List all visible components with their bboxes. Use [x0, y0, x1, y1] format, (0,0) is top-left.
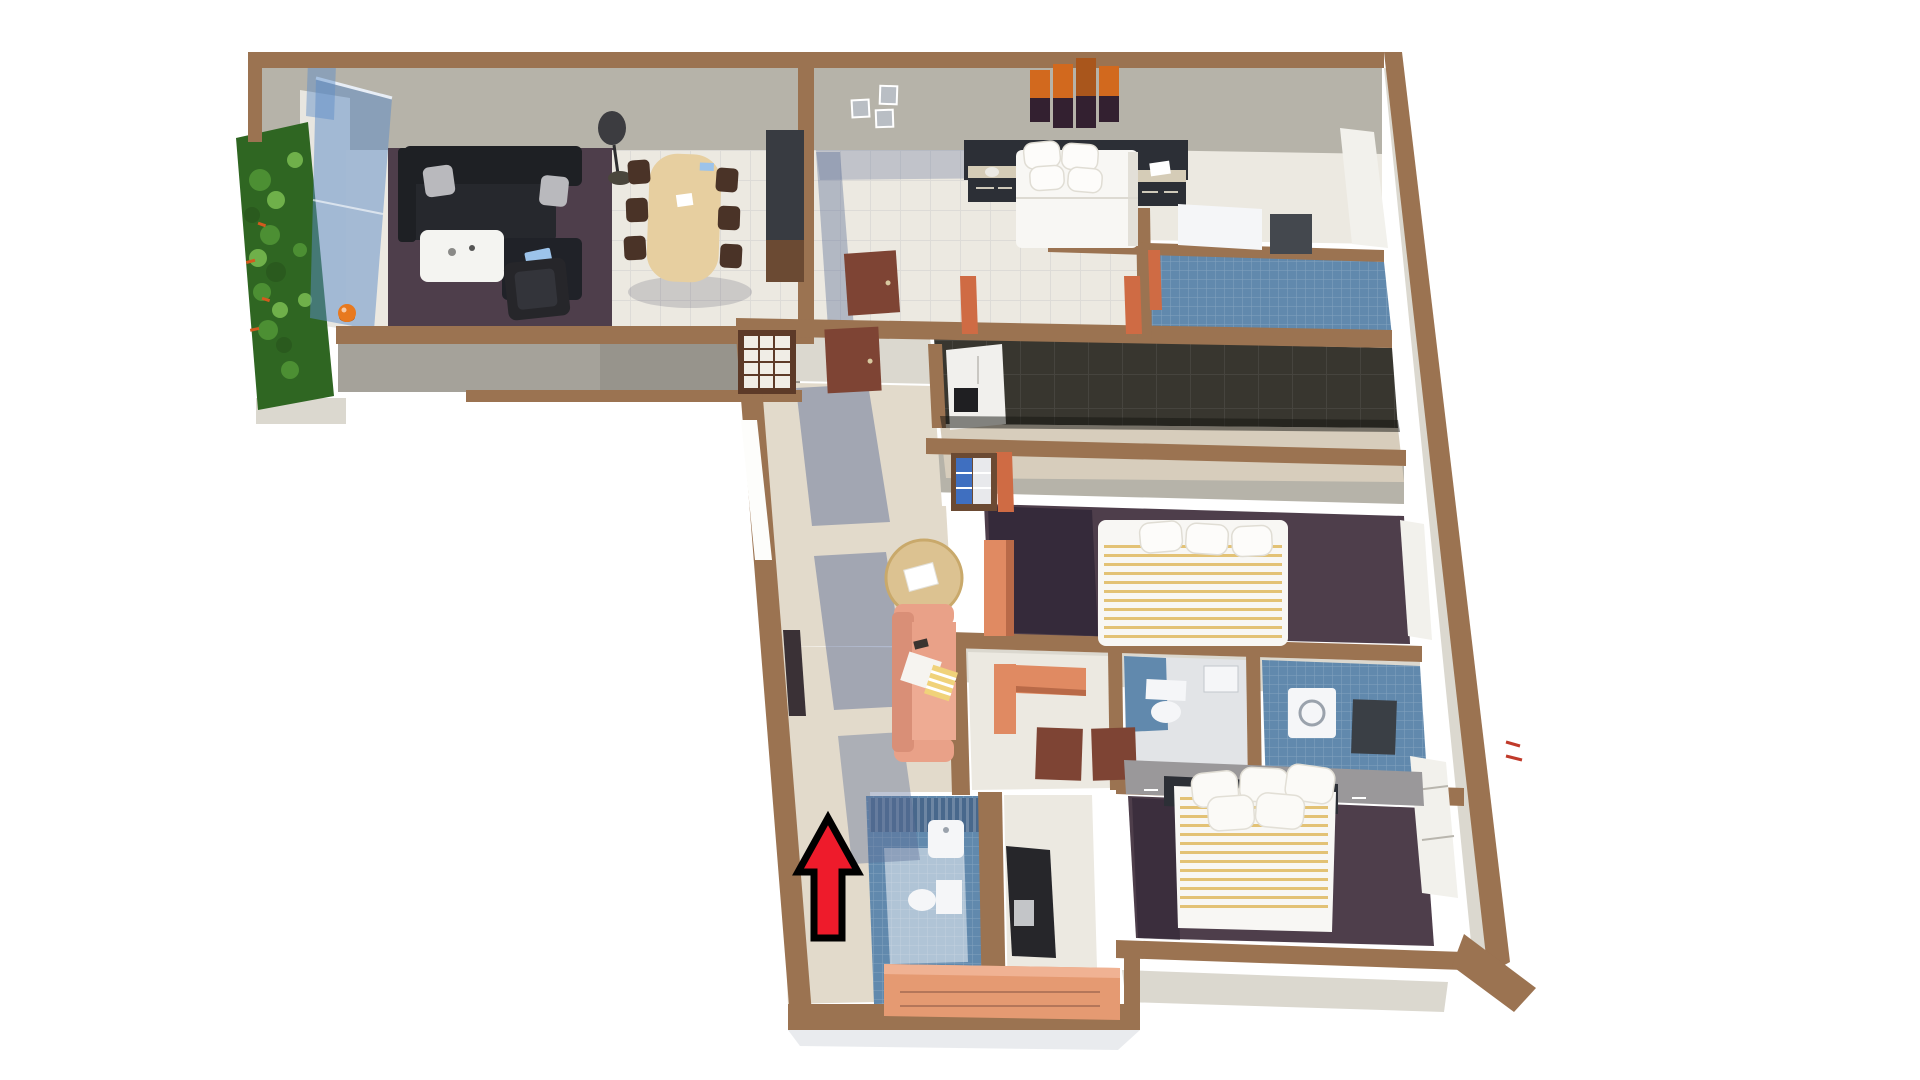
refrigerator-panel — [954, 388, 978, 412]
wall-entry-step — [1124, 950, 1140, 1030]
dark-cabinet — [1270, 214, 1312, 254]
white-coffee-table — [420, 230, 504, 282]
bookshelf — [951, 453, 997, 511]
sofa-cushion-right — [539, 175, 570, 208]
black-l-sofa-armrest — [398, 148, 416, 242]
sideboard-cabinet — [766, 130, 804, 242]
wall-living-bottom — [336, 326, 802, 344]
hall-door — [824, 327, 881, 394]
leaning-door — [844, 250, 900, 315]
entry-console — [884, 964, 1120, 1020]
toilet-tank — [1146, 679, 1187, 701]
orange-ball — [338, 304, 356, 322]
table-lamp — [985, 167, 999, 177]
guest-toilet-tank — [936, 880, 962, 914]
middle-bed-pillows — [1139, 520, 1273, 557]
dining-table — [646, 153, 722, 283]
bathroom-sink — [1204, 666, 1238, 692]
book — [1149, 161, 1171, 177]
right-edge-marks — [1506, 742, 1522, 760]
black-armchair — [503, 257, 571, 321]
shoji-screen — [738, 330, 796, 394]
nightstand-left — [968, 166, 1020, 202]
wall-left-stub — [248, 52, 262, 142]
sofa-cushion-left — [422, 164, 456, 198]
wall-top — [248, 52, 1384, 68]
guest-sink — [928, 820, 964, 858]
apartment-scene — [0, 0, 1920, 1080]
vanity — [1178, 204, 1262, 250]
salmon-sofa — [892, 604, 958, 762]
sideboard-cabinet-base — [766, 240, 804, 282]
window-glass-upper — [306, 60, 336, 120]
washing-machine — [1288, 688, 1336, 738]
floorplan-render — [0, 0, 1920, 1080]
dark-unit — [1351, 699, 1397, 755]
guest-toilet-bowl — [908, 889, 936, 911]
toilet-bowl — [1151, 701, 1181, 723]
